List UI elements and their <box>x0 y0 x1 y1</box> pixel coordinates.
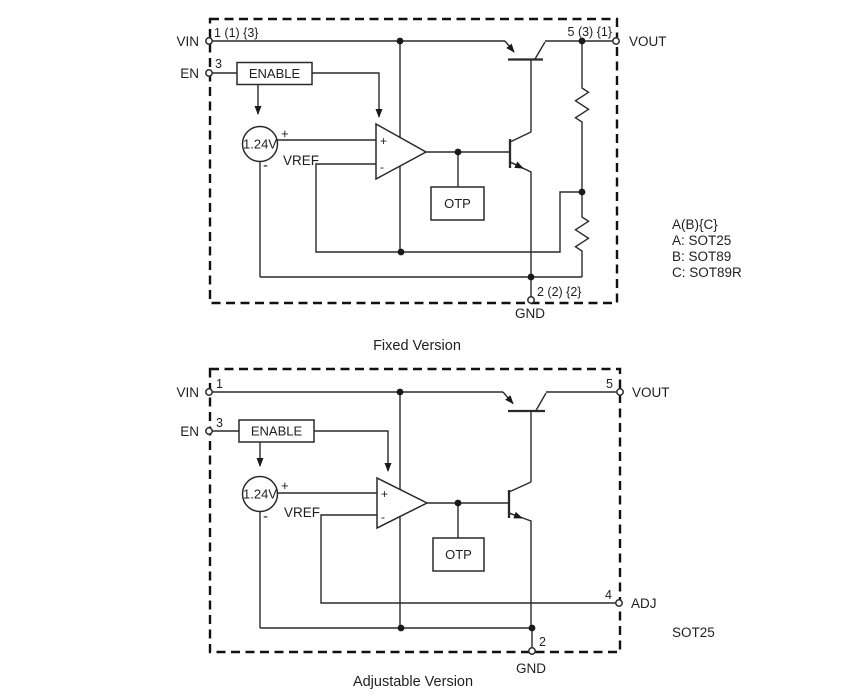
ldo-block-diagrams: + - ENABLE OTP 1.24V + - VREF <box>0 0 850 696</box>
fixed-version-title: Fixed Version <box>373 338 461 354</box>
adjustable-version-title: Adjustable Version <box>353 674 473 690</box>
vref-source: 1.24V + - VREF <box>243 126 320 174</box>
opamp-plus-sign: + <box>380 134 387 148</box>
en-label: EN <box>180 66 199 81</box>
vref-value: 1.24V <box>243 137 277 152</box>
vout-label: VOUT <box>632 385 670 400</box>
vout-pin <box>617 389 623 395</box>
gnd-label: GND <box>515 306 545 321</box>
vin-pin <box>206 389 212 395</box>
ldo-block-diagram-page: + - ENABLE OTP 1.24V + - VREF <box>0 0 850 696</box>
vin-pin-number: 1 <box>216 377 223 391</box>
error-amplifier: + - <box>377 478 427 528</box>
pnp-emitter <box>503 392 513 404</box>
vout-pin-number: 5 <box>606 377 613 391</box>
en-pin-number: 3 <box>216 416 223 430</box>
vref-plus-sign: + <box>281 478 289 493</box>
driver-transistor-npn <box>509 482 531 628</box>
package-note-line: B: SOT89 <box>672 249 731 264</box>
junction-dot <box>398 249 405 256</box>
vin-pin-number: 1 (1) {3} <box>214 26 258 40</box>
vref-minus-sign: - <box>263 508 268 525</box>
ic-boundary-dashed <box>210 369 620 652</box>
adj-pin-number: 4 <box>605 588 612 602</box>
adjustable-version-diagram: + - ENABLE OTP 1.24V + - VREF <box>176 369 714 690</box>
junction-dot <box>455 149 462 156</box>
vout-label: VOUT <box>629 34 667 49</box>
junction-dot <box>579 189 586 196</box>
vref-value: 1.24V <box>243 487 277 502</box>
junction-dot <box>529 625 536 632</box>
gnd-label: GND <box>516 661 546 676</box>
junction-dot <box>528 274 535 281</box>
npn-emitter-arrow <box>510 162 523 168</box>
gnd-pin <box>528 297 534 303</box>
pnp-collector <box>535 42 545 59</box>
junction-dot <box>455 500 462 507</box>
adj-label: ADJ <box>631 596 657 611</box>
junction-dot <box>397 38 404 45</box>
resistor-r1 <box>576 41 589 192</box>
enable-label: ENABLE <box>251 424 303 439</box>
otp-block: OTP <box>433 538 484 571</box>
otp-label: OTP <box>444 196 471 211</box>
opamp-minus-sign: - <box>380 160 384 174</box>
vref-label: VREF <box>284 505 320 520</box>
otp-block: OTP <box>431 187 484 220</box>
vin-label: VIN <box>176 34 199 49</box>
en-label: EN <box>180 424 199 439</box>
package-note-line: C: SOT89R <box>672 265 742 280</box>
error-amplifier: + - <box>376 124 426 179</box>
ic-boundary-dashed <box>210 19 617 303</box>
vin-label: VIN <box>176 385 199 400</box>
npn-collector <box>510 132 531 142</box>
junction-dot <box>397 389 404 396</box>
package-note-line: A(B){C} <box>672 217 718 232</box>
enable-block: ENABLE <box>237 63 312 85</box>
vref-source: 1.24V + - VREF <box>243 477 321 526</box>
package-note-line: A: SOT25 <box>672 233 731 248</box>
pnp-collector <box>536 393 546 411</box>
adj-pin <box>616 600 622 606</box>
pass-transistor-pnp <box>505 41 545 132</box>
pnp-emitter <box>505 41 514 52</box>
npn-emitter-arrow <box>509 513 522 518</box>
enable-to-opamp-wire <box>314 431 388 471</box>
vref-plus-sign: + <box>281 126 289 141</box>
package-note-adjustable: SOT25 <box>672 625 715 640</box>
vref-minus-sign: - <box>263 157 268 174</box>
resistor-r2 <box>576 192 589 277</box>
gnd-pin-number: 2 <box>539 635 546 649</box>
enable-label: ENABLE <box>249 66 301 81</box>
vout-pin <box>613 38 619 44</box>
gnd-pin-number: 2 (2) {2} <box>537 285 581 299</box>
vout-pin-number: 5 (3) {1} <box>568 25 612 39</box>
package-note-fixed: A(B){C} A: SOT25 B: SOT89 C: SOT89R <box>672 217 742 280</box>
pass-transistor-pnp <box>503 392 546 482</box>
vin-pin <box>206 38 212 44</box>
en-pin-number: 3 <box>215 57 222 71</box>
opamp-minus-sign: - <box>381 510 385 524</box>
enable-to-opamp-wire <box>312 73 379 117</box>
junction-dot <box>398 625 405 632</box>
en-pin <box>206 428 212 434</box>
fixed-version-diagram: + - ENABLE OTP 1.24V + - VREF <box>176 19 742 354</box>
en-pin <box>206 70 212 76</box>
otp-label: OTP <box>445 547 472 562</box>
driver-transistor-npn <box>510 132 531 277</box>
opamp-plus-sign: + <box>381 487 388 501</box>
npn-collector <box>509 482 531 492</box>
enable-block: ENABLE <box>239 420 314 442</box>
gnd-pin <box>529 648 535 654</box>
npn-emitter <box>509 513 531 628</box>
vref-label: VREF <box>283 153 319 168</box>
npn-emitter <box>510 162 531 277</box>
